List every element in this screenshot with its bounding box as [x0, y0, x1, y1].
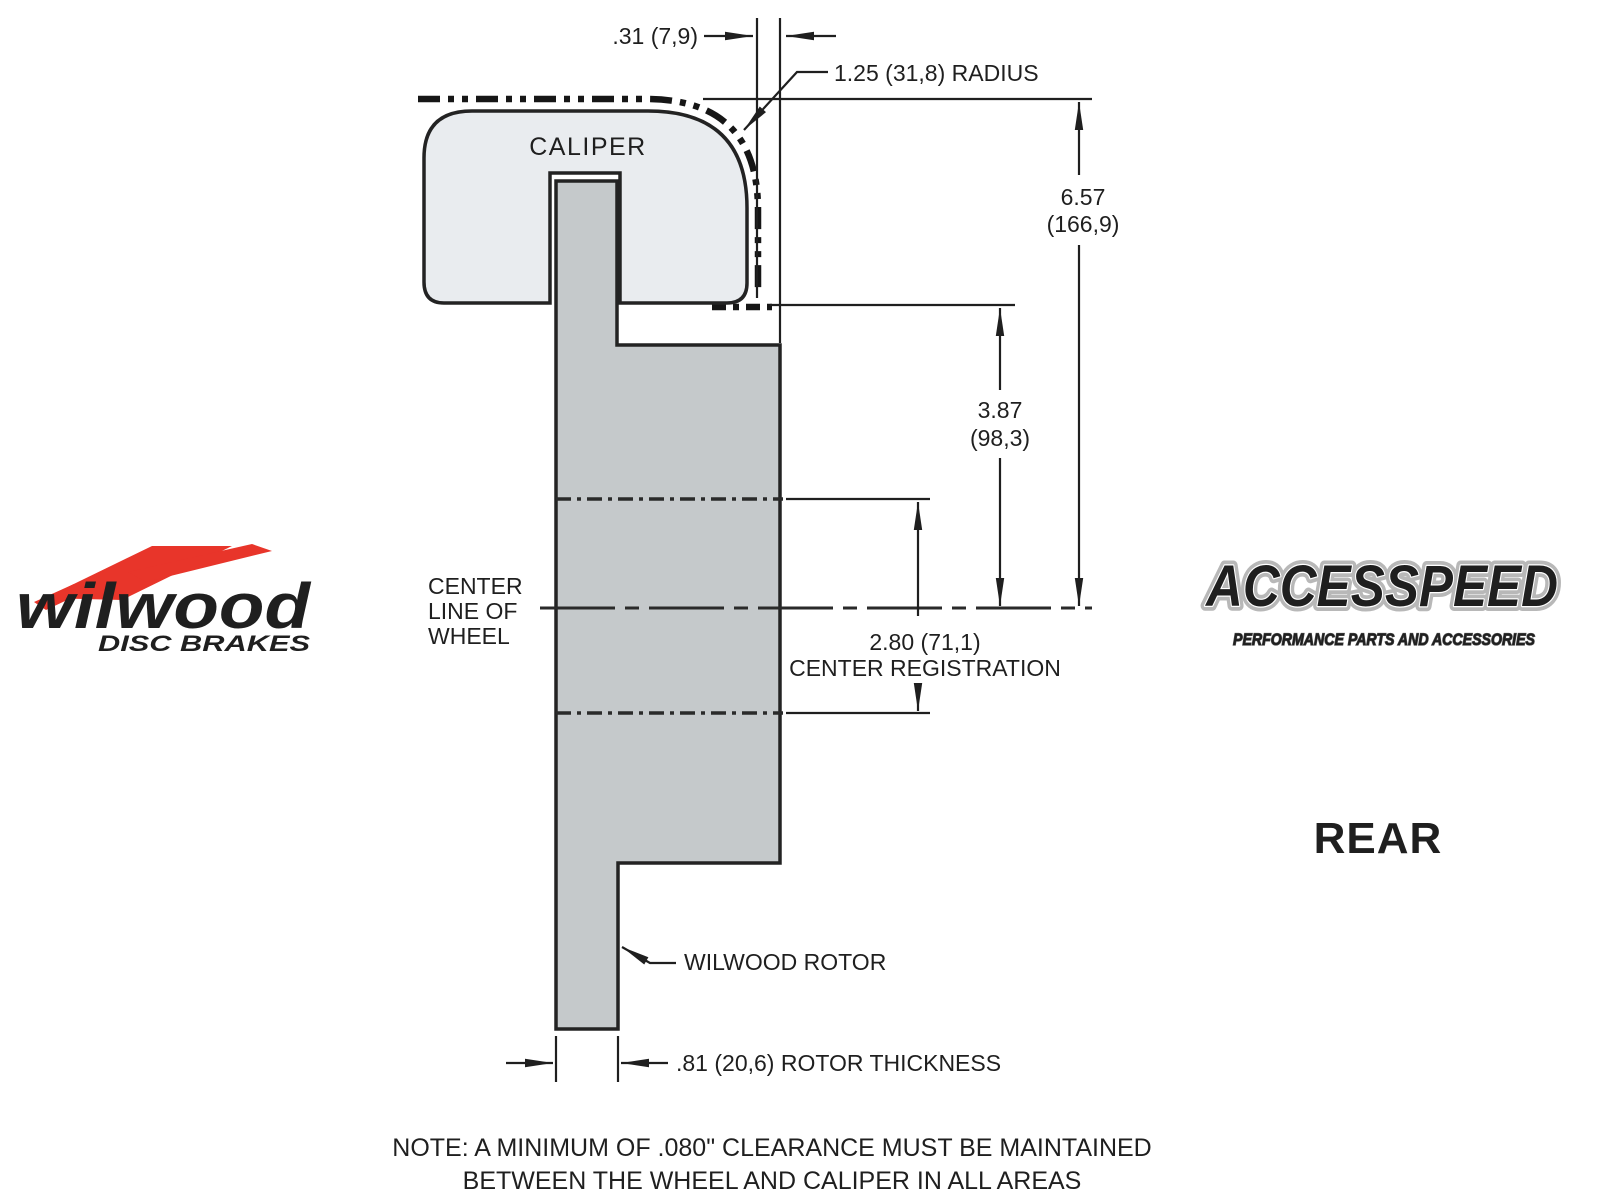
technical-drawing-svg: CALIPER CENTER LINE OF WHEEL .31 (7,9) 1…: [0, 0, 1600, 1200]
gap-dim-label: .31 (7,9): [612, 23, 698, 49]
accesspeed-logo-tagline: PERFORMANCE PARTS AND ACCESSORIES: [1233, 630, 1536, 649]
note-line-1: NOTE: A MINIMUM OF .080" CLEARANCE MUST …: [392, 1134, 1151, 1162]
rotor-label: WILWOOD ROTOR: [684, 949, 886, 975]
centerline-label-2: LINE OF: [428, 598, 517, 624]
centerline-label-3: WHEEL: [428, 623, 510, 649]
caliper-label: CALIPER: [529, 133, 646, 161]
accesspeed-logo-name: ACCESSPEED: [1204, 554, 1558, 619]
register-dim-label: CENTER REGISTRATION: [789, 655, 1061, 681]
overall-dim-value-in: 6.57: [1061, 184, 1106, 210]
overall-dim-value-mm: (166,9): [1047, 211, 1120, 237]
register-dim-value: 2.80 (71,1): [869, 629, 980, 655]
thickness-dim-label: .81 (20,6) ROTOR THICKNESS: [676, 1050, 1001, 1076]
view-label-rear: REAR: [1314, 814, 1443, 863]
mount-dim-value-in: 3.87: [978, 397, 1023, 423]
note-line-2: BETWEEN THE WHEEL AND CALIPER IN ALL ARE…: [463, 1167, 1082, 1195]
centerline-label-1: CENTER: [428, 573, 523, 599]
radius-label: 1.25 (31,8) RADIUS: [834, 60, 1039, 86]
accesspeed-logo: ACCESSPEED ACCESSPEED PERFORMANCE PARTS …: [1204, 554, 1558, 649]
mount-dim-value-mm: (98,3): [970, 425, 1030, 451]
wilwood-logo-tagline: DISC BRAKES: [98, 631, 310, 656]
